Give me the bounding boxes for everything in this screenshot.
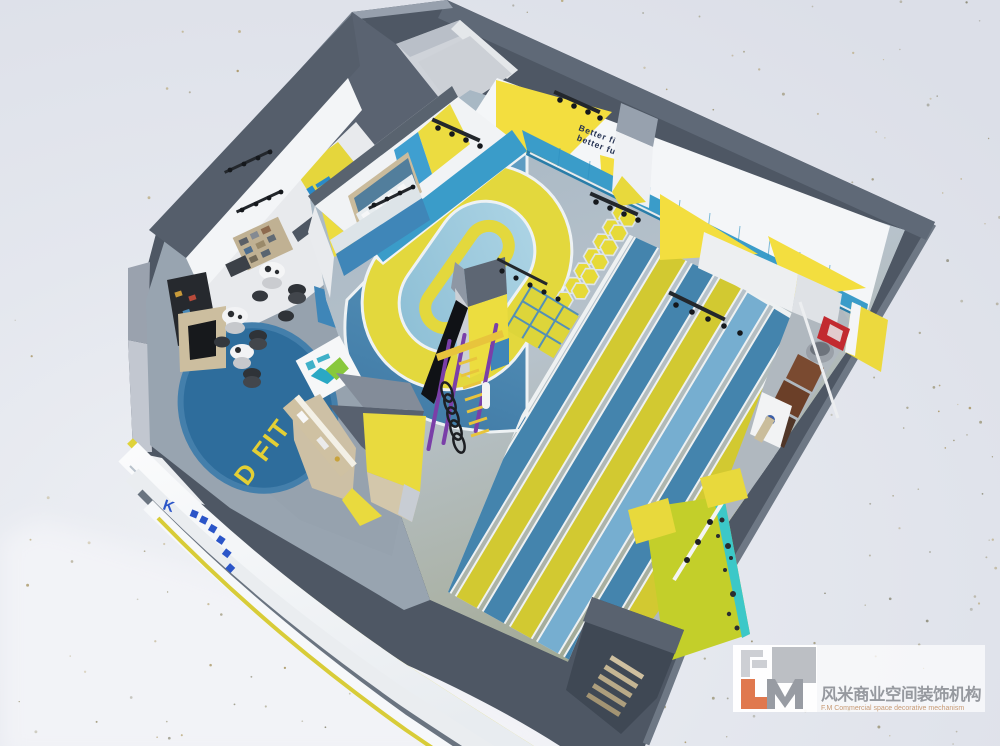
svg-text:F.M Commercial space decorativ: F.M Commercial space decorative mechanis… [821, 705, 964, 712]
svg-text:风米商业空间装饰机构: 风米商业空间装饰机构 [821, 684, 981, 704]
